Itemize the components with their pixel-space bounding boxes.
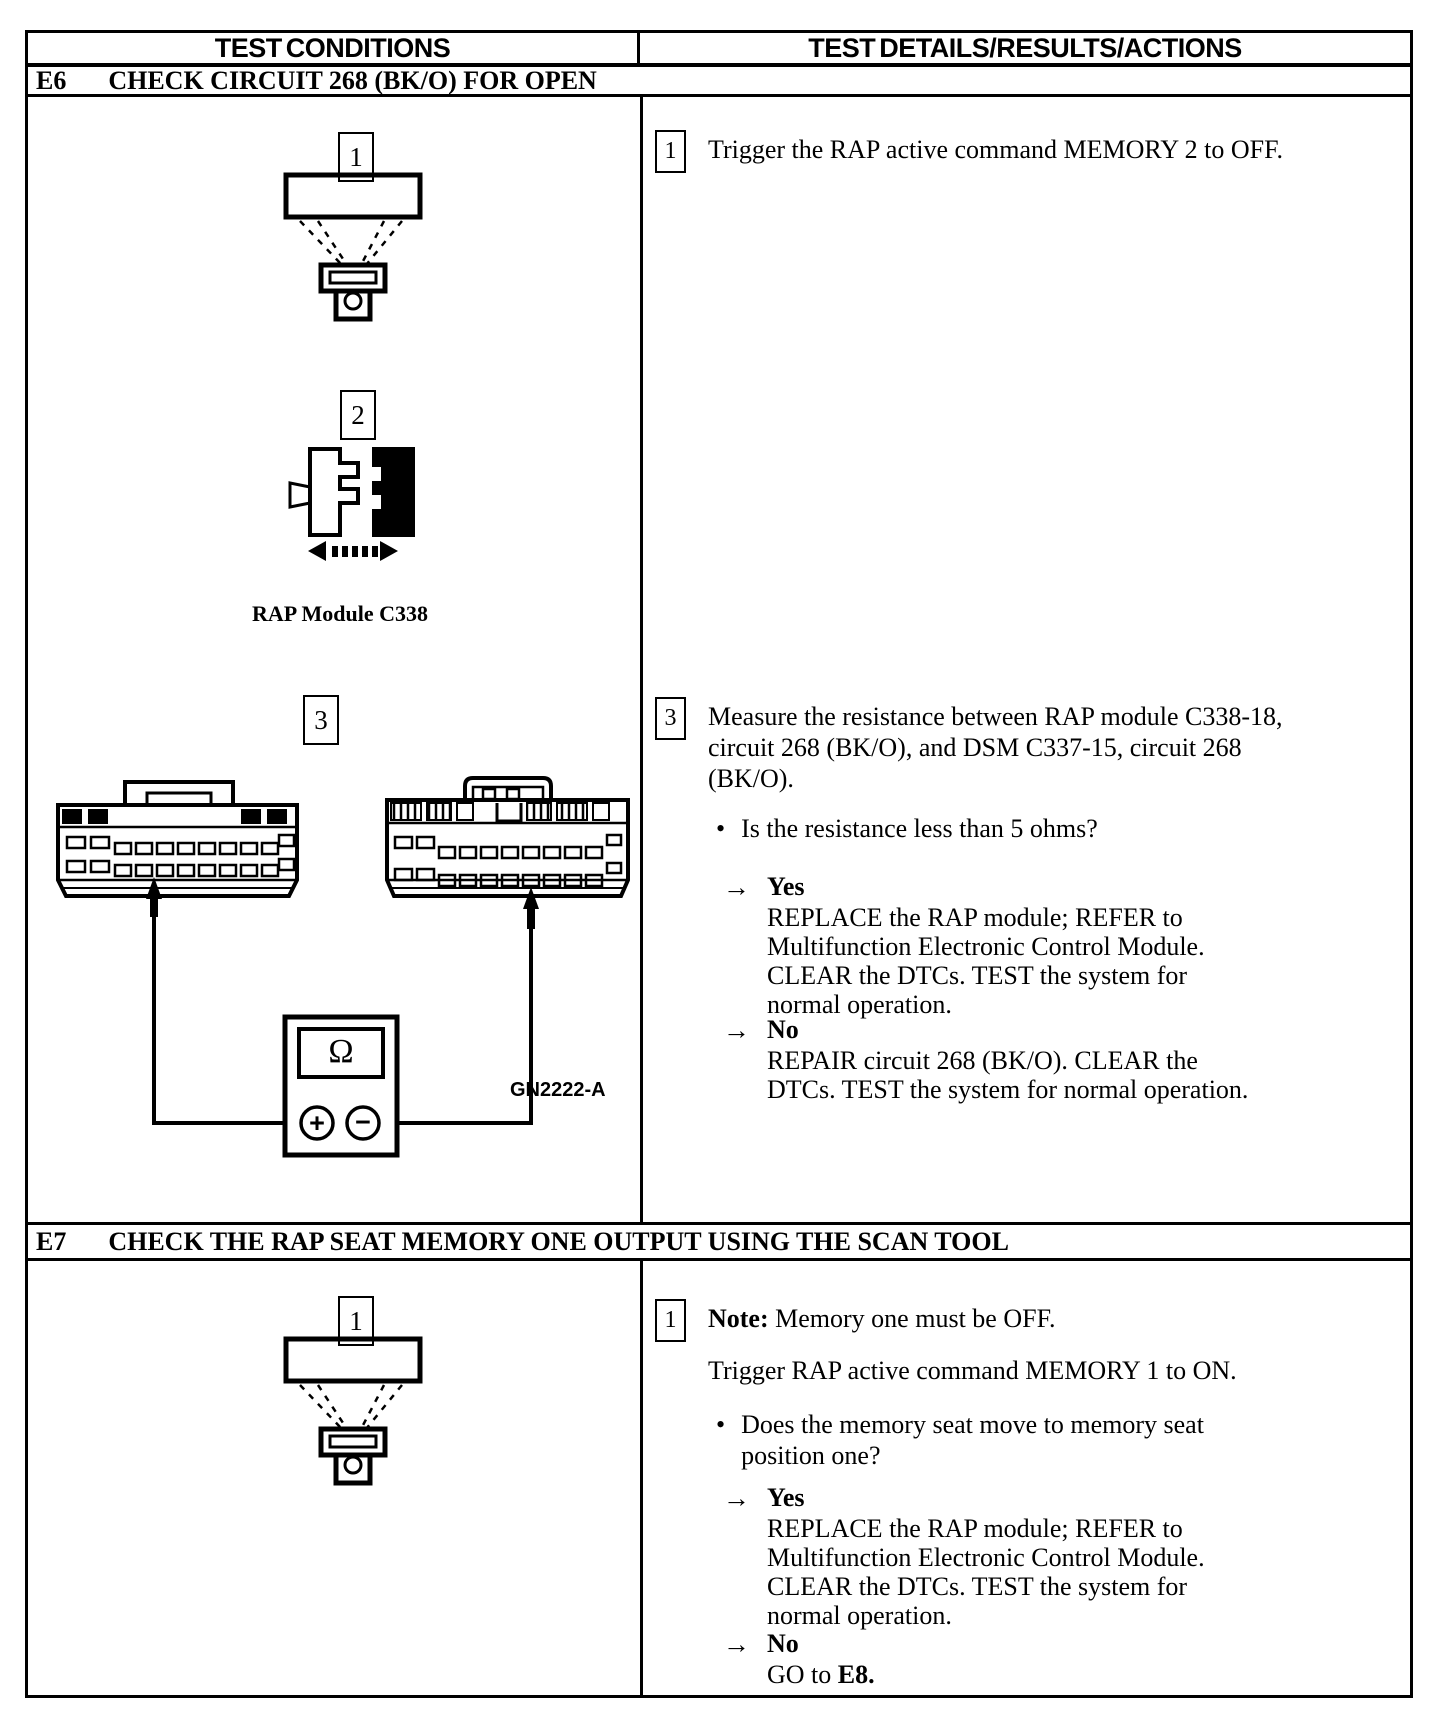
e7-no-label: No (767, 1629, 1267, 1659)
column-divider (640, 97, 643, 1222)
e6-yes-label: Yes (767, 872, 1267, 902)
e7-yes-label: Yes (767, 1483, 1267, 1513)
e7-detail-step1-text: Trigger RAP active command MEMORY 1 to O… (708, 1355, 1318, 1386)
e6-answer-no: → No REPAIR circuit 268 (BK/O). CLEAR th… (723, 1015, 1267, 1104)
e7-question: • Does the memory seat move to memory se… (716, 1409, 1231, 1471)
pins (395, 835, 621, 886)
rap-module-caption: RAP Module C338 (230, 601, 450, 627)
e6-question-text: Is the resistance less than 5 ohms? (741, 813, 1231, 844)
disconnect-connector-icon (280, 443, 425, 568)
e7-detail-step1-marker: 1 (655, 1299, 686, 1342)
bullet-icon: • (716, 813, 725, 844)
bullet-icon: • (716, 1409, 725, 1471)
figure-id-label: GN2222-A (510, 1079, 606, 1102)
e6-step2-marker: 2 (340, 390, 376, 440)
e6-detail-step1: 1 Trigger the RAP active command MEMORY … (655, 130, 1318, 173)
e6-question: • Is the resistance less than 5 ohms? (716, 813, 1231, 844)
left-probe (146, 877, 162, 917)
scan-tool-icon (278, 1333, 428, 1488)
e6-detail-step1-marker: 1 (655, 130, 686, 173)
e6-title-row: E6 CHECK CIRCUIT 268 (BK/O) FOR OPEN (28, 67, 1410, 97)
resistance-measurement-diagram: Ω + − (55, 765, 637, 1165)
header-test-details: TEST DETAILS/RESULTS/ACTIONS (640, 33, 1410, 63)
e6-detail-step3-text: Measure the resistance between RAP modul… (708, 697, 1318, 794)
e6-no-label: No (767, 1015, 1267, 1045)
e7-test-id: E7 (36, 1227, 66, 1257)
e6-test-title: CHECK CIRCUIT 268 (BK/O) FOR OPEN (108, 66, 597, 96)
e6-detail-step3-marker: 3 (655, 697, 686, 740)
e7-answer-no: → No GO to E8. (723, 1629, 1267, 1689)
double-arrow (308, 541, 398, 561)
note-label: Note: (708, 1304, 769, 1333)
e6-answer-yes: → Yes REPLACE the RAP module; REFER to M… (723, 872, 1267, 1019)
e7-note-line: Note: Memory one must be OFF. (708, 1303, 1318, 1334)
arrow-icon: → (723, 1629, 751, 1689)
e6-detail-step1-text: Trigger the RAP active command MEMORY 2 … (708, 130, 1318, 165)
pinpoint-test-table: TEST CONDITIONS TEST DETAILS/RESULTS/ACT… (25, 30, 1413, 1698)
e7-no-action: GO to E8. (767, 1660, 1267, 1689)
pinpoint-test-page: TEST CONDITIONS TEST DETAILS/RESULTS/ACT… (0, 0, 1440, 1710)
right-connector (387, 778, 628, 929)
note-text: Memory one must be OFF. (769, 1304, 1056, 1333)
table-header-row: TEST CONDITIONS TEST DETAILS/RESULTS/ACT… (28, 33, 1410, 67)
right-probe (523, 887, 539, 929)
e6-test-id: E6 (36, 66, 66, 96)
e7-answer-yes: → Yes REPLACE the RAP module; REFER to M… (723, 1483, 1267, 1630)
minus-sign: − (355, 1107, 371, 1137)
column-divider (640, 1261, 643, 1695)
left-test-lead (154, 915, 303, 1123)
plus-sign: + (309, 1108, 325, 1138)
arrow-icon: → (723, 872, 751, 1019)
e7-no-action-target: E8. (838, 1660, 875, 1689)
left-connector (58, 782, 297, 917)
e6-no-action: REPAIR circuit 268 (BK/O). CLEAR the DTC… (767, 1046, 1267, 1104)
e7-yes-action: REPLACE the RAP module; REFER to Multifu… (767, 1514, 1267, 1630)
e7-no-action-prefix: GO to (767, 1660, 838, 1689)
e6-body: 1 2 (28, 97, 1410, 1225)
e7-question-text: Does the memory seat move to memory seat… (741, 1409, 1231, 1471)
ohm-display: Ω (328, 1033, 353, 1070)
scan-tool-icon (278, 169, 428, 324)
e7-title-row: E7 CHECK THE RAP SEAT MEMORY ONE OUTPUT … (28, 1225, 1410, 1261)
e7-test-title: CHECK THE RAP SEAT MEMORY ONE OUTPUT USI… (108, 1227, 1009, 1257)
arrow-icon: → (723, 1483, 751, 1630)
e6-step3-marker: 3 (303, 695, 339, 745)
ohmmeter: Ω + − (285, 1017, 397, 1155)
right-test-lead (377, 927, 531, 1123)
e7-detail-step1: 1 Note: Memory one must be OFF. Trigger … (655, 1299, 1318, 1386)
e6-yes-action: REPLACE the RAP module; REFER to Multifu… (767, 903, 1267, 1019)
header-test-conditions: TEST CONDITIONS (28, 33, 640, 63)
pins (67, 835, 294, 876)
e6-detail-step3: 3 Measure the resistance between RAP mod… (655, 697, 1318, 794)
e7-body: 1 1 Note: Memory one must be OFF. (28, 1261, 1410, 1695)
arrow-icon: → (723, 1015, 751, 1104)
